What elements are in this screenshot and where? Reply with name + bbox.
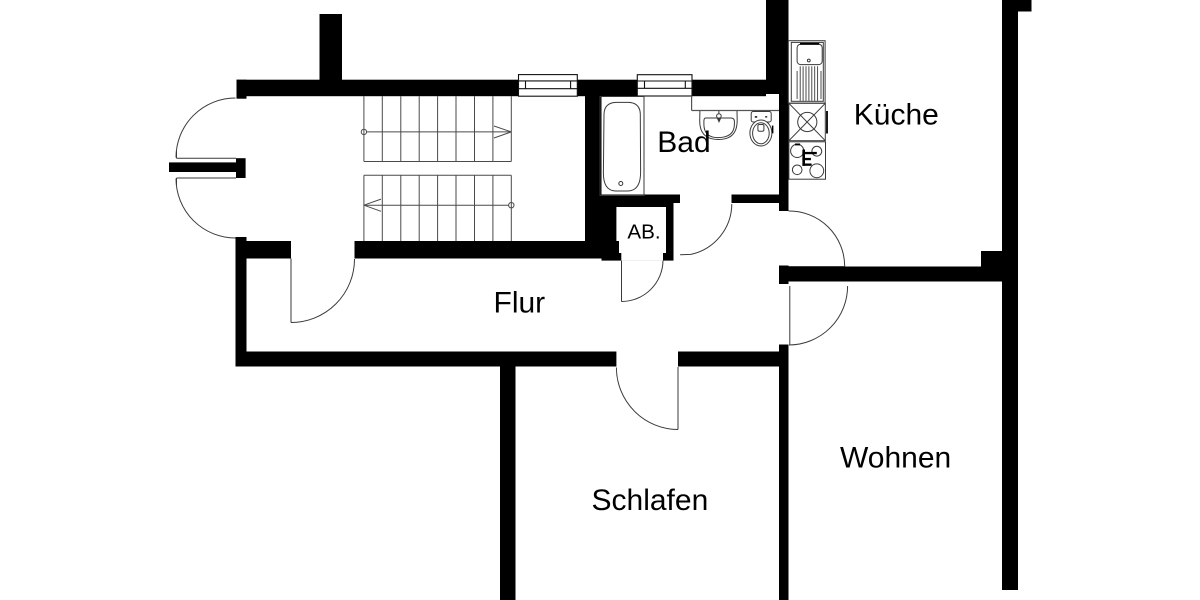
svg-text:Küche: Küche: [854, 99, 939, 132]
svg-text:Schlafen: Schlafen: [592, 484, 709, 517]
svg-text:Flur: Flur: [494, 287, 546, 320]
svg-text:Wohnen: Wohnen: [840, 441, 951, 474]
svg-text:Bad: Bad: [657, 126, 710, 159]
svg-text:AB.: AB.: [627, 220, 660, 243]
